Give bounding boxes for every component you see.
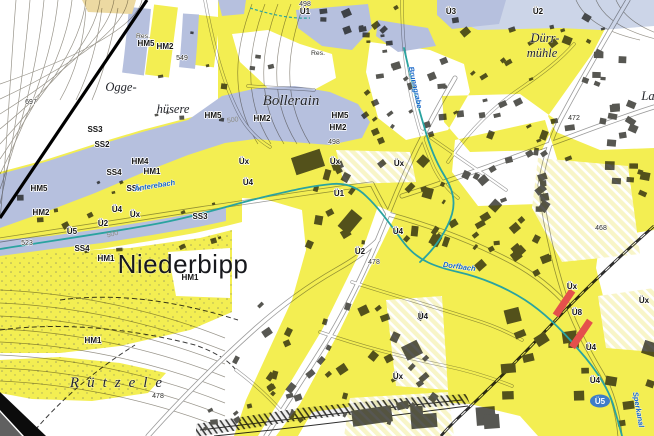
elevation-label: 478 (368, 259, 380, 266)
elevation-label: 468 (595, 225, 607, 232)
place-name-label: hüsere (157, 102, 190, 116)
place-name-label: mühle (527, 46, 558, 60)
hazard-code-label: Ü4 (243, 178, 254, 187)
hazard-code-label: Ü5 (67, 227, 78, 236)
elevation-label: 498 (299, 1, 311, 8)
elevation-label: 697 (25, 99, 37, 106)
hazard-code-label: HM1 (144, 167, 161, 176)
u5-stop-badge: Ü5 (590, 395, 610, 408)
hazard-code-label: Ü4 (590, 376, 601, 385)
hazard-code-label: SS3 (192, 212, 208, 221)
hazard-code-label: Ü3 (446, 7, 457, 16)
hazard-code-label: SS2 (94, 140, 110, 149)
hazard-code-label: HM5 (138, 39, 155, 48)
hazard-code-label: Üx (394, 159, 405, 168)
hazard-code-label: Ü4 (393, 227, 404, 236)
hazard-code-label: HM5 (31, 184, 48, 193)
hazard-code-label: Üx (239, 157, 250, 166)
hazard-code-label: Üx (393, 372, 404, 381)
place-name-label: Dürr- (530, 31, 560, 45)
hazard-code-label: Ü8 (572, 308, 583, 317)
place-name-label: Ogge- (105, 80, 136, 94)
place-name-label: La (640, 89, 654, 103)
place-name-label: Niederbipp (118, 249, 249, 279)
hazard-code-label: Ü1 (300, 7, 311, 16)
hazard-code-label: SS4 (74, 244, 90, 253)
place-name-label: Bollerain (263, 93, 320, 109)
hazard-code-label: Üx (567, 282, 578, 291)
hazard-code-label: Üx (639, 296, 650, 305)
place-name-label: Rützele (69, 375, 170, 391)
hazard-code-label: HM1 (85, 336, 102, 345)
hazard-code-label: HM5 (205, 111, 222, 120)
hazard-code-label: Üx (330, 157, 341, 166)
hazard-code-label: Ü4 (586, 343, 597, 352)
hazard-code-label: Ü1 (334, 189, 345, 198)
map-viewport[interactable]: Ü5 HM5HM2Ü1Ü3Ü2HM5HM2HM5HM2SS3SS2HM4HM1S… (0, 0, 654, 436)
hazard-code-label: Ü4 (112, 205, 123, 214)
hazard-code-label: Ü2 (533, 7, 544, 16)
hazard-code-label: Üx (130, 210, 141, 219)
hazard-map-canvas[interactable]: Ü5 HM5HM2Ü1Ü3Ü2HM5HM2HM5HM2SS3SS2HM4HM1S… (0, 0, 654, 436)
hazard-code-label: HM2 (157, 42, 174, 51)
elevation-label: 498 (328, 139, 340, 146)
map-note-label: Res. (136, 33, 150, 40)
hazard-code-label: HM2 (33, 208, 50, 217)
elevation-label: 549 (176, 55, 188, 62)
elevation-label: 478 (152, 393, 164, 400)
elevation-label: 523 (21, 240, 33, 247)
hazard-code-label: Ü4 (418, 312, 429, 321)
hazard-code-label: HM1 (98, 254, 115, 263)
u5-stop-badge-label: Ü5 (595, 397, 606, 406)
hazard-code-label: Ü2 (98, 219, 109, 228)
map-note-label: Res. (311, 50, 325, 57)
hazard-code-label: SS3 (87, 125, 103, 134)
hazard-code-label: HM2 (254, 114, 271, 123)
hazard-code-label: HM5 (332, 111, 349, 120)
elevation-label: 472 (568, 115, 580, 122)
hazard-code-label: HM2 (330, 123, 347, 132)
hazard-code-label: Ü2 (355, 247, 366, 256)
hazard-code-label: HM4 (132, 157, 149, 166)
hazard-code-label: SS4 (106, 168, 122, 177)
